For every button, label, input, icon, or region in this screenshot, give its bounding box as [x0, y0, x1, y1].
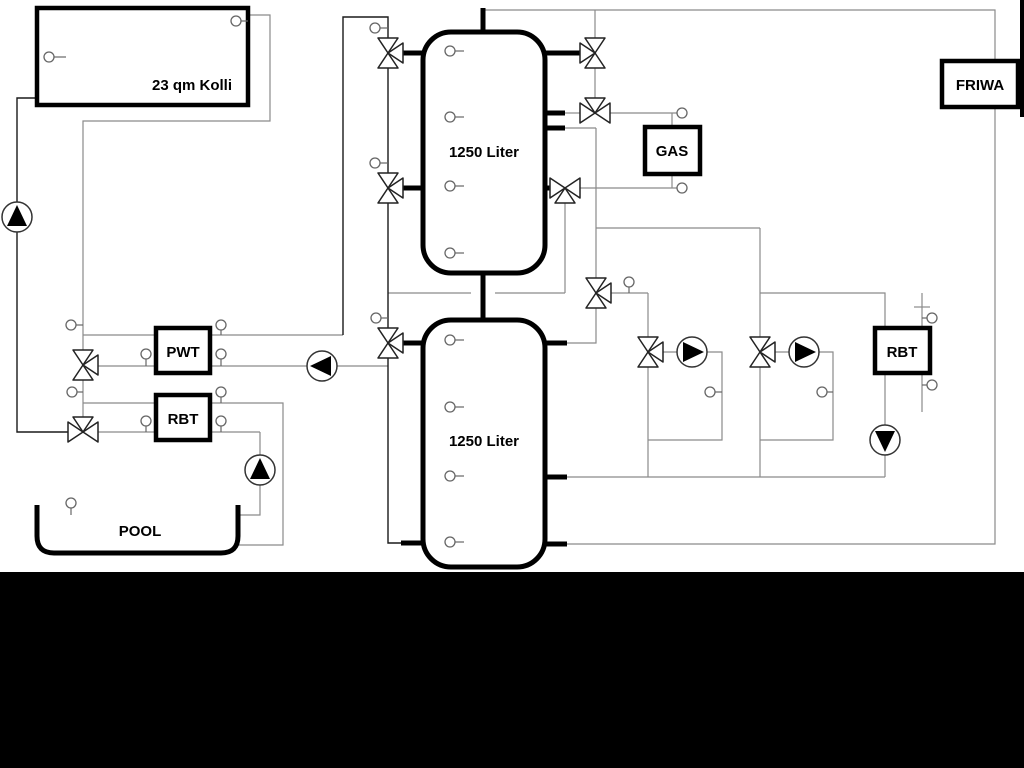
- friwa-label: FRIWA: [956, 77, 1004, 94]
- three-way-valve-icon: [750, 337, 775, 367]
- temperature-sensor-icon: [370, 23, 388, 33]
- right-edge-black-strip: [1020, 0, 1024, 117]
- temperature-sensor-icon: [216, 416, 226, 432]
- temperature-sensor-icon: [66, 498, 76, 515]
- temperature-sensor-icon: [922, 380, 937, 390]
- gas-label: GAS: [656, 143, 689, 160]
- temperature-sensor-icon: [370, 158, 388, 168]
- three-way-valve-icon: [378, 173, 403, 203]
- temperature-sensor-icon: [66, 320, 83, 330]
- hydraulic-diagram: 23 qm Kolli 1250 Liter 1250 Liter GAS FR…: [0, 0, 1024, 768]
- pump-icon: [307, 351, 337, 381]
- rbt-left-label: RBT: [168, 411, 199, 428]
- collector-label: 23 qm Kolli: [152, 77, 232, 94]
- pump-icon: [2, 202, 32, 232]
- three-way-valve-icon: [638, 337, 663, 367]
- three-way-valve-icon: [586, 278, 611, 308]
- pump-icon: [870, 425, 900, 455]
- temperature-sensor-icon: [216, 320, 226, 335]
- schematic-canvas: 23 qm Kolli 1250 Liter 1250 Liter GAS FR…: [0, 0, 1024, 768]
- pump-icon: [677, 337, 707, 367]
- temperature-sensor-icon: [371, 313, 388, 323]
- three-way-valve-icon: [580, 38, 605, 68]
- temperature-sensor-icon: [705, 387, 722, 397]
- temperature-sensor-icon: [67, 387, 83, 397]
- temperature-sensor-icon: [677, 183, 687, 193]
- rbt-right-label: RBT: [887, 344, 918, 361]
- three-way-valve-icon: [73, 350, 98, 380]
- pool-label: POOL: [119, 523, 162, 540]
- pump-icon: [245, 455, 275, 485]
- tank-top-label: 1250 Liter: [449, 144, 519, 161]
- footer-black-bar: [0, 572, 1024, 768]
- temperature-sensor-icon: [216, 349, 226, 366]
- pwt-label: PWT: [166, 344, 199, 361]
- pump-icon: [789, 337, 819, 367]
- temperature-sensor-icon: [624, 277, 634, 293]
- temperature-sensor-icon: [922, 313, 937, 323]
- three-way-valve-icon: [580, 98, 610, 123]
- three-way-valve-icon: [378, 38, 403, 68]
- temperature-sensor-icon: [141, 416, 151, 432]
- temperature-sensor-icon: [677, 108, 687, 118]
- temperature-sensor-icon: [817, 387, 833, 397]
- three-way-valve-icon: [68, 417, 98, 442]
- three-way-valve-icon: [378, 328, 403, 358]
- tank-bottom-label: 1250 Liter: [449, 433, 519, 450]
- three-way-valve-icon: [550, 178, 580, 203]
- temperature-sensor-icon: [141, 349, 151, 366]
- temperature-sensor-icon: [216, 387, 226, 403]
